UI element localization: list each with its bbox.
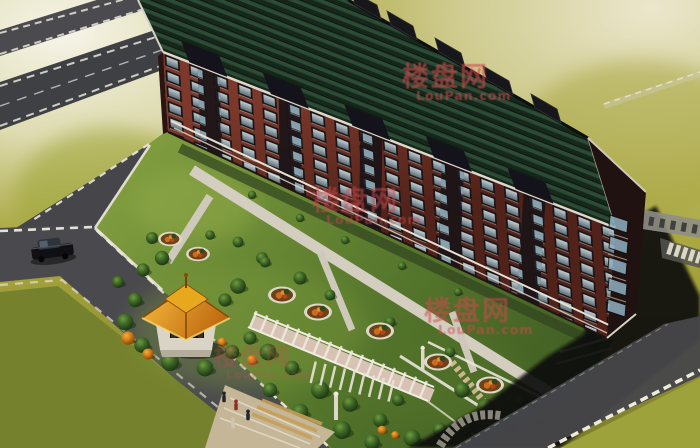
- rendering-canvas: 楼盘网 LouPan.com 楼盘网 LouPan.com 楼盘网 LouPan…: [0, 0, 700, 448]
- lamp-post: [421, 350, 425, 370]
- lamp-post: [334, 396, 338, 420]
- scene-rendering: [0, 0, 700, 448]
